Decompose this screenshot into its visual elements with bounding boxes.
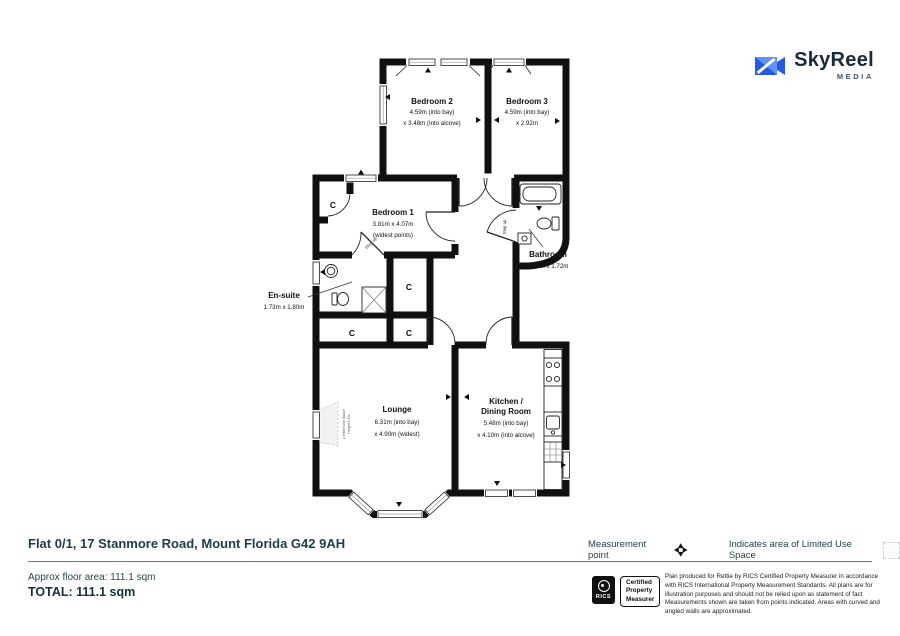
page: SkyReel MEDIA — [0, 0, 900, 636]
limited-use-swatch — [883, 542, 900, 559]
fixtures — [325, 184, 563, 490]
svg-text:Bedroom 2: Bedroom 2 — [411, 97, 453, 106]
bathroom-sink — [518, 233, 531, 244]
room-label-ensuite: En-suite 1.73m x 1.80m — [264, 291, 305, 311]
cupboard-label: C — [406, 282, 412, 292]
limited-use-label: Height 1.5m — [347, 414, 351, 433]
svg-text:6.31m (into bay): 6.31m (into bay) — [375, 419, 420, 426]
svg-text:x 4.10m (into alcove): x 4.10m (into alcove) — [477, 432, 534, 439]
room-label-bedroom-3: Bedroom 3 4.59m (into bay) x 2.92m — [505, 97, 550, 127]
disclaimer-text: Plan produced for Rettie by RICS Certifi… — [665, 573, 881, 617]
rics-wordmark: RICS — [596, 594, 611, 600]
plan-legend: Measurement point Indicates area of Limi… — [588, 539, 900, 561]
svg-text:5.48m (into bay): 5.48m (into bay) — [484, 420, 529, 427]
step-up-label: Step up — [502, 219, 507, 234]
kitchen-sink — [544, 412, 562, 436]
svg-text:4.59m (into bay): 4.59m (into bay) — [410, 109, 455, 116]
svg-text:1.73m x 1.80m: 1.73m x 1.80m — [264, 304, 305, 311]
svg-text:3.81m x 4.07m: 3.81m x 4.07m — [373, 221, 414, 228]
measurement-arrows — [320, 68, 566, 508]
rics-emblem-icon — [598, 580, 610, 592]
measurement-point-label: Measurement point — [588, 539, 667, 561]
svg-text:Bedroom 3: Bedroom 3 — [506, 97, 548, 106]
toilet — [537, 217, 559, 230]
ensuite-toilet — [332, 293, 349, 306]
room-label-kitchen: Kitchen / Dining Room 5.48m (into bay) x… — [477, 397, 534, 439]
svg-text:Lounge: Lounge — [383, 405, 412, 414]
svg-text:Bathroom: Bathroom — [529, 250, 567, 259]
room-label-bedroom-1: Bedroom 1 3.81m x 4.07m (widest points) — [372, 208, 414, 239]
limited-use-label: Limited Use Space — [342, 409, 346, 439]
svg-text:En-suite: En-suite — [268, 291, 300, 300]
cupboard-label: C — [330, 200, 336, 210]
doors — [328, 178, 516, 345]
shower — [362, 287, 386, 313]
svg-text:Dining Room: Dining Room — [481, 407, 531, 416]
approx-floor-area: Approx floor area: 111.1 sqm — [28, 572, 155, 583]
total-area: TOTAL: 111.1 sqm — [28, 585, 135, 599]
room-label-bedroom-2: Bedroom 2 4.59m (into bay) x 3.48m (into… — [403, 97, 460, 127]
svg-text:x 3.48m (into alcove): x 3.48m (into alcove) — [403, 120, 460, 127]
limited-use-area — [320, 402, 339, 446]
rics-logo: RICS — [592, 576, 615, 604]
limited-use-legend-label: Indicates area of Limited Use Space — [729, 539, 877, 561]
property-address: Flat 0/1, 17 Stanmore Road, Mount Florid… — [28, 536, 345, 551]
walls — [316, 62, 566, 515]
svg-text:Kitchen /: Kitchen / — [489, 397, 524, 406]
appliance — [544, 442, 562, 462]
room-label-lounge: Lounge 6.31m (into bay) x 4.90m (widest) — [374, 405, 419, 438]
footer-divider — [28, 561, 872, 562]
svg-text:1.89m x 1.72m: 1.89m x 1.72m — [528, 263, 569, 270]
cupboard-label: C — [406, 328, 412, 338]
svg-text:(widest points): (widest points) — [373, 232, 413, 239]
certified-property-measurer-badge: Certified Property Measurer — [620, 576, 660, 607]
svg-text:x 4.90m (widest): x 4.90m (widest) — [374, 431, 419, 438]
svg-text:Bedroom 1: Bedroom 1 — [372, 208, 414, 217]
svg-text:4.59m (into bay): 4.59m (into bay) — [505, 109, 550, 116]
cupboard-label: C — [349, 328, 355, 338]
bathtub — [520, 184, 561, 204]
ensuite-sink — [325, 265, 338, 278]
hob — [544, 358, 562, 386]
measurement-point-icon — [673, 542, 688, 558]
svg-text:x 2.92m: x 2.92m — [516, 120, 538, 127]
